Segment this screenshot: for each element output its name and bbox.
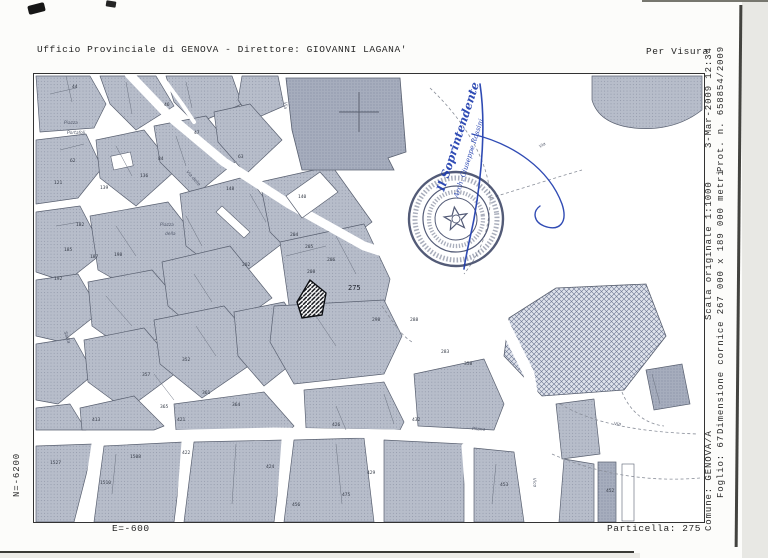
- frame-size-label: Dimensione cornice 267 000 x 189 000 met…: [716, 169, 726, 434]
- scan-edge-shadow-bottom: [0, 553, 640, 558]
- parcel-number-label: 1508: [130, 454, 141, 460]
- parcel-number-label: 84: [158, 156, 164, 162]
- scan-ink-mark: [27, 2, 46, 15]
- parcel-number-label: 121: [54, 180, 63, 186]
- parcel-number-label: 283: [441, 349, 450, 355]
- per-visura-label: Per Visura: [646, 46, 709, 57]
- parcel-number-label: 182: [76, 222, 85, 228]
- scanned-cadastral-extract: Ufficio Provinciale di GENOVA - Direttor…: [0, 0, 768, 558]
- parcel-number-label: 202: [242, 262, 251, 268]
- parcel-number-label: 424: [266, 464, 275, 470]
- street-name-label: della: [165, 231, 176, 237]
- parcel-number-label: 148: [226, 186, 235, 192]
- office-header: Ufficio Provinciale di GENOVA - Direttor…: [37, 44, 407, 55]
- parcel-number-label: 422: [182, 450, 191, 456]
- street-name-label: Via: [282, 102, 288, 109]
- parcel-number-label: 208: [307, 269, 316, 275]
- protocol-number-label: Prot. n. 658854/2009: [716, 46, 726, 172]
- street-name-label: Piazza: [160, 222, 174, 228]
- parcel-number-label: 198: [114, 252, 123, 258]
- scan-ink-mark: [106, 0, 117, 7]
- scale-label: Scala originale 1:1000: [704, 181, 714, 320]
- parcel-number-label: 204: [290, 232, 299, 238]
- street-name-label: Pilana: [472, 426, 486, 433]
- street-name-label: Via: [614, 421, 622, 427]
- parcel-number-label: 421: [177, 417, 186, 423]
- parcel-number-label: 44: [72, 84, 78, 90]
- street-name-label: Portafoli: [67, 130, 86, 136]
- parcel-number-label: 456: [292, 502, 301, 508]
- narrow-building-outline: [622, 464, 634, 521]
- scan-page-edge-line: [735, 5, 742, 547]
- parcel-number-label: 63: [238, 154, 244, 160]
- parcel-number-label: 452: [606, 488, 615, 494]
- parcel-number-label: 140: [298, 194, 307, 200]
- parcel-number-label: 192: [54, 276, 63, 282]
- parcel-number-label: 1527: [50, 460, 61, 466]
- comune-label: Comune: GENOVA/A: [704, 430, 714, 531]
- parcel-number-label: 358: [464, 361, 473, 367]
- foglio-label: Foglio: 67: [716, 435, 726, 498]
- street-name-label: Vico: [531, 478, 538, 488]
- parcel-number-label: 426: [332, 422, 341, 428]
- parcel-number-label: 187: [90, 254, 99, 260]
- particella-label: Particella: 275: [607, 523, 701, 534]
- parcel-number-label: 365: [160, 404, 169, 410]
- parcel-number-label: 298: [372, 317, 381, 323]
- scan-edge-shadow-right: [742, 0, 768, 558]
- parcel-number-label: 136: [140, 173, 149, 179]
- subject-parcel-number: 275: [348, 284, 361, 292]
- map-frame: 275 444647638462121136139148140182185187…: [33, 73, 705, 523]
- parcel-number-label: 205: [305, 244, 314, 250]
- parcel-number-label: 475: [342, 492, 351, 498]
- parcel-number-label: 453: [500, 482, 509, 488]
- parcel-number-label: 352: [182, 357, 191, 363]
- parcel-number-label: 413: [92, 417, 101, 423]
- east-coordinate-label: E=-600: [112, 523, 150, 534]
- cadastral-map: 275 444647638462121136139148140182185187…: [34, 74, 704, 522]
- large-building-top: [286, 78, 406, 170]
- small-block-right: [646, 364, 690, 410]
- parcel-number-label: 357: [142, 372, 151, 378]
- north-coordinate-label: N=-6200: [12, 453, 22, 497]
- parcel-number-label: 185: [64, 247, 73, 253]
- parcel-number-label: 429: [367, 470, 376, 476]
- parcel-number-label: 361: [202, 390, 211, 396]
- parcel-number-label: 1510: [100, 480, 111, 486]
- parcel-number-label: 364: [232, 402, 241, 408]
- street-name-label: Piazza: [64, 120, 78, 126]
- parcel-number-label: 47: [194, 130, 200, 136]
- parcel-number-label: 46: [164, 102, 170, 108]
- scan-edge-line-top: [642, 0, 768, 2]
- parcel-number-label: 139: [100, 185, 109, 191]
- parcel-number-label: 62: [70, 158, 76, 164]
- print-datetime-label: 3-Mar-2009 12:34: [704, 47, 714, 148]
- parcel-number-label: 288: [410, 317, 419, 323]
- parcel-number-label: 432: [412, 417, 421, 423]
- parcel-number-label: 206: [327, 257, 336, 263]
